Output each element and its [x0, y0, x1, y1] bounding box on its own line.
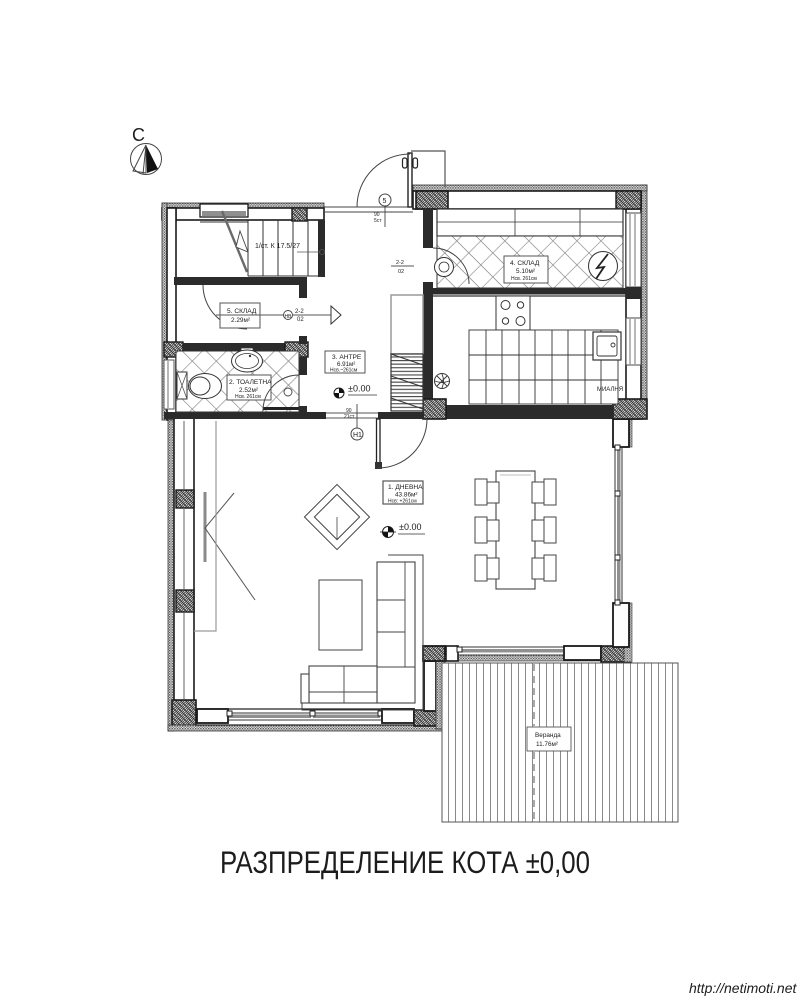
svg-text:11.76м²: 11.76м² [536, 741, 558, 748]
svg-text:Нсв.~261см: Нсв.~261см [330, 368, 358, 374]
svg-text:4. СКЛАД: 4. СКЛАД [510, 260, 540, 267]
svg-text:C: C [132, 125, 145, 145]
svg-text:Веранда: Веранда [535, 732, 561, 739]
svg-text:1/ст. К 17.5/27: 1/ст. К 17.5/27 [255, 243, 300, 250]
svg-text:НВ: НВ [285, 314, 293, 320]
svg-text:2. ТОАЛЕТНА: 2. ТОАЛЕТНА [229, 379, 272, 386]
svg-text:1. ДНЕВНА: 1. ДНЕВНА [388, 484, 423, 491]
svg-text:02: 02 [398, 269, 404, 275]
svg-text:5. СКЛАД: 5. СКЛАД [227, 308, 257, 315]
svg-text:МИАЛНЯ: МИАЛНЯ [597, 387, 623, 393]
svg-text:Нсв. 261см: Нсв. 261см [511, 276, 537, 282]
svg-text:±0.00: ±0.00 [348, 384, 370, 394]
svg-text:2.29м²: 2.29м² [231, 317, 250, 324]
svg-text:Нсв. 261см: Нсв. 261см [235, 394, 261, 400]
svg-text:Н1: Н1 [353, 432, 362, 439]
svg-text:43.86м²: 43.86м² [395, 492, 418, 499]
svg-text:2-2: 2-2 [396, 260, 404, 266]
svg-text:РАЗПРЕДЕЛЕНИЕ КОТА ±0,00: РАЗПРЕДЕЛЕНИЕ КОТА ±0,00 [220, 844, 590, 880]
svg-text:5: 5 [383, 198, 387, 205]
svg-text:±0.00: ±0.00 [399, 522, 421, 532]
svg-text:5.10м²: 5.10м² [516, 268, 535, 275]
svg-text:2-2: 2-2 [295, 309, 304, 315]
svg-text:Нсв: +261см: Нсв: +261см [388, 499, 417, 505]
svg-text:2.52м²: 2.52м² [239, 387, 258, 394]
svg-text:21ст: 21ст [344, 414, 355, 420]
svg-text:5ст: 5ст [374, 218, 382, 224]
svg-text:http://netimoti.net: http://netimoti.net [689, 980, 798, 996]
svg-text:3. АНТРЕ: 3. АНТРЕ [332, 354, 362, 361]
svg-text:02: 02 [297, 317, 304, 323]
